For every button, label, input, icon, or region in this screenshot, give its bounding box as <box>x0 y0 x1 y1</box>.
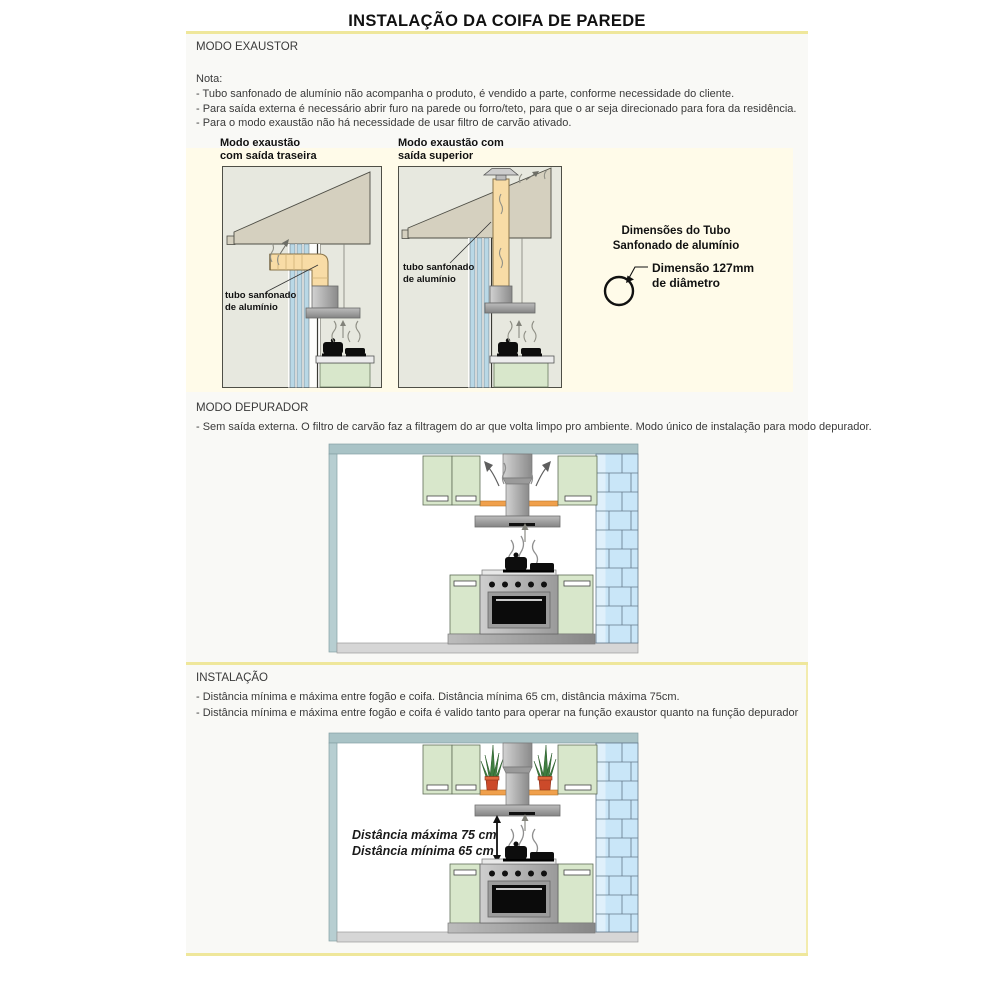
note-bullet: - Distância mínima e máxima entre fogão … <box>196 691 680 703</box>
left-wall <box>329 743 337 941</box>
tube-dimension-figure: Dimensão 127mm de diâmetro <box>600 256 770 318</box>
tube-dimensions-title-line1: Dimensões do Tubo <box>621 225 730 237</box>
cabinet-handle <box>456 785 476 790</box>
cabinet-handle <box>565 496 591 501</box>
diagram-rear-label-line1: Modo exaustão <box>220 137 300 149</box>
page-title: INSTALAÇÃO DA COIFA DE PAREDE <box>186 12 808 31</box>
note-bullet: - Para saída externa é necessário abrir … <box>196 103 796 115</box>
pan <box>530 852 554 860</box>
diagram-rear-exhaust: tubo sanfonado de alumínio <box>222 166 382 388</box>
floor <box>337 643 638 653</box>
hood-canopy <box>475 516 560 527</box>
manual-page: { "title": "INSTALAÇÃO DA COIFA DE PARED… <box>0 0 1000 1000</box>
kitchen-illustration-depurador <box>325 442 645 662</box>
pan <box>345 348 365 355</box>
divider-bottom <box>186 953 808 956</box>
pan <box>530 563 554 571</box>
note-bullet: - Distância mínima e máxima entre fogão … <box>196 707 798 719</box>
cabinet-handle <box>454 581 476 586</box>
stove-knob <box>502 582 508 588</box>
cabinet-handle <box>454 870 476 875</box>
tube-label-line2: de alumínio <box>225 302 278 313</box>
section-heading-depurador: MODO DEPURADOR <box>196 402 308 414</box>
cabinet-handle <box>564 581 590 586</box>
divider-middle <box>186 662 808 665</box>
hood-canopy <box>475 805 560 816</box>
distance-min-label: Distância mínima 65 cm <box>352 844 494 858</box>
pot <box>505 846 527 859</box>
stove-knob <box>489 582 495 588</box>
diagram-rear-label: Modo exaustão com saída traseira <box>220 137 317 163</box>
distance-max-label: Distância máxima 75 cm <box>352 828 497 842</box>
tube-dimensions-title-line2: Sanfonado de alumínio <box>613 240 740 252</box>
section-heading-exaustor: MODO EXAUSTOR <box>196 41 298 53</box>
cabinet-handle <box>565 785 591 790</box>
hood-chimney <box>503 454 532 516</box>
pot <box>498 342 518 354</box>
cabinet-handle <box>564 870 590 875</box>
nota-label: Nota: <box>196 73 222 85</box>
dimension-leader-line <box>629 267 648 278</box>
diagram-top-exhaust: tubo sanfonado de alumínio <box>398 166 562 388</box>
plinth <box>448 634 595 644</box>
hood-filter <box>509 812 535 815</box>
hood-chimney <box>503 743 532 805</box>
cabinet-handle <box>456 496 476 501</box>
left-wall <box>329 454 337 652</box>
ceiling <box>329 733 638 743</box>
kitchen-illustration-instalacao: Distância máxima 75 cm Distância mínima … <box>325 731 645 951</box>
diagram-top-label-line1: Modo exaustão com <box>398 137 504 149</box>
diagram-top-label-line2: saída superior <box>398 150 473 162</box>
cabinet-handle <box>427 785 448 790</box>
stove-knob <box>528 582 534 588</box>
note-bullet: - Sem saída externa. O filtro de carvão … <box>196 421 872 433</box>
stove-knob <box>515 582 521 588</box>
divider-top <box>186 31 808 34</box>
brick-wall <box>596 743 638 932</box>
diagram-rear-label-line2: com saída traseira <box>220 150 317 162</box>
stove-knob <box>541 582 547 588</box>
pot <box>323 342 343 354</box>
section-right-border <box>806 665 808 953</box>
brick-wall <box>596 454 638 643</box>
tube-dimensions-title: Dimensões do Tubo Sanfonado de alumínio <box>612 224 740 254</box>
tube-label-line1: tubo sanfonado <box>225 290 296 301</box>
stove-knob <box>489 871 495 877</box>
dimension-note-line1: Dimensão 127mm <box>652 261 754 275</box>
cabinet-handle <box>427 496 448 501</box>
pot <box>505 557 527 570</box>
tube-label-line2: de alumínio <box>403 274 456 285</box>
plinth <box>448 923 595 933</box>
diagram-top-label: Modo exaustão com saída superior <box>398 137 504 163</box>
note-bullet: - Para o modo exaustão não há necessidad… <box>196 117 571 129</box>
note-bullet: - Tubo sanfonado de alumínio não acompan… <box>196 88 734 100</box>
ceiling <box>329 444 638 454</box>
floor <box>337 932 638 942</box>
hood-filter <box>509 523 535 526</box>
section-heading-instalacao: INSTALAÇÃO <box>196 672 268 684</box>
stove-knob <box>515 871 521 877</box>
pan <box>521 348 541 355</box>
tube-label-line1: tubo sanfonado <box>403 262 474 273</box>
stove-knob <box>541 871 547 877</box>
flex-duct-vertical <box>493 179 509 286</box>
dimension-note-line2: de diâmetro <box>652 276 720 290</box>
stove-knob <box>528 871 534 877</box>
stove-knob <box>502 871 508 877</box>
